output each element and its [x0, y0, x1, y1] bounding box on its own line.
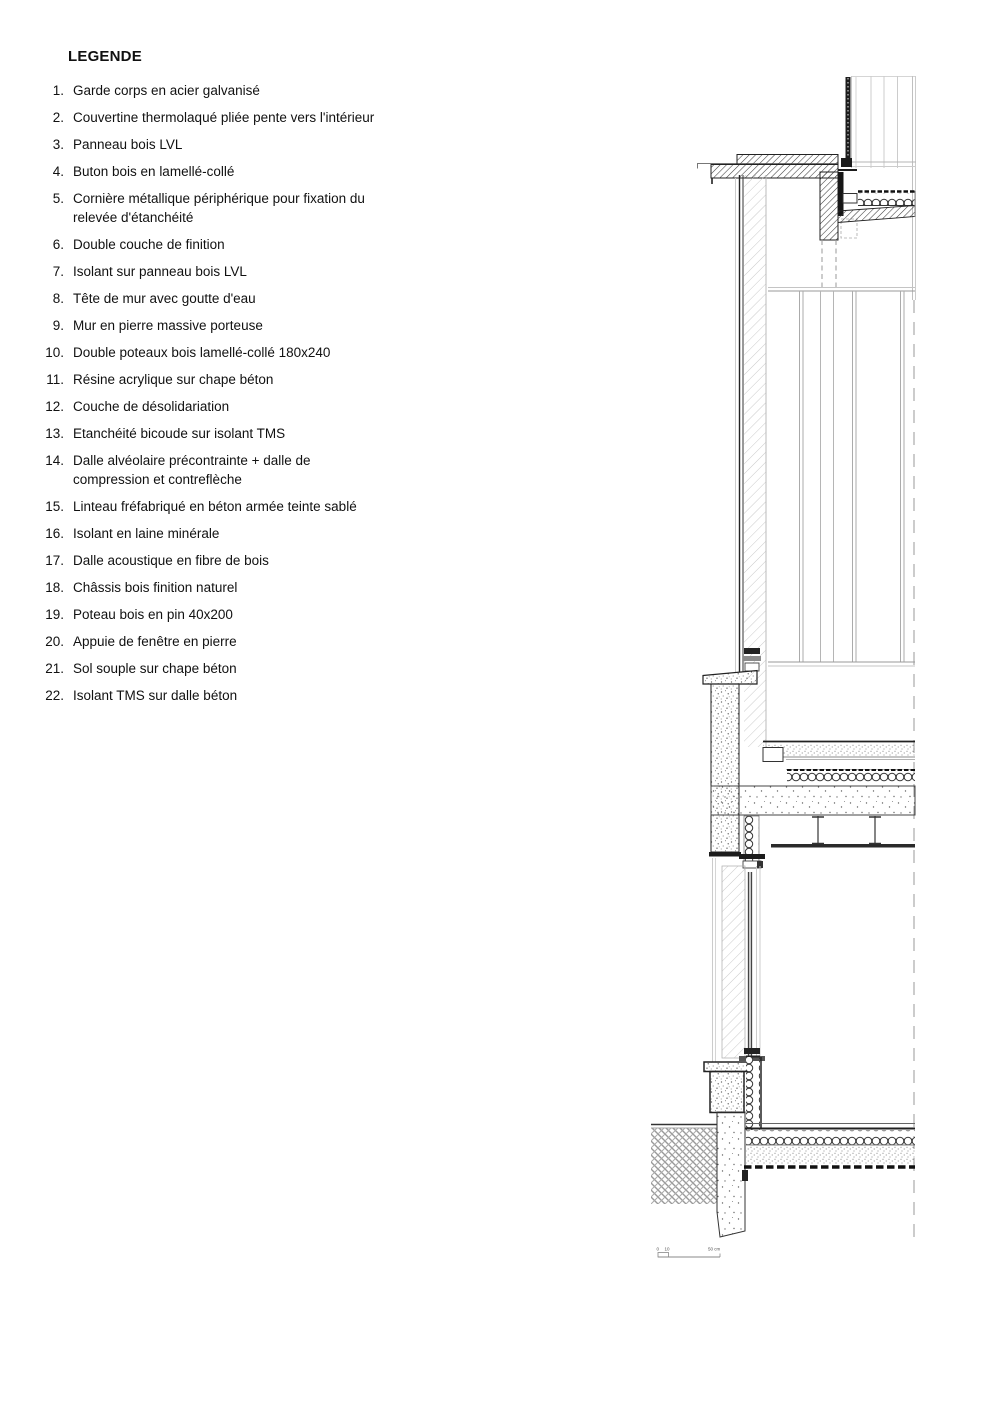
exterior-ground [651, 1125, 717, 1205]
coping [697, 155, 838, 185]
upper-glazing-elevation [851, 76, 916, 300]
architectural-detail-sheet: LEGENDE 1.Garde corps en acier galvanisé… [0, 0, 1000, 1414]
section-detail-drawing: 0 10 50 cm [0, 0, 1000, 1414]
intermediate-floor-slab [711, 742, 915, 863]
upper-wall [736, 175, 767, 747]
scale-ten-label: 10 [665, 1247, 671, 1252]
scale-zero-label: 0 [657, 1247, 660, 1252]
railing-post [838, 77, 857, 170]
lower-window-section [713, 854, 766, 1062]
foundation-wall [717, 1112, 745, 1237]
upper-window-elevation [768, 288, 915, 667]
scale-bar: 0 10 50 cm [657, 1247, 721, 1258]
ground-floor-slab [742, 1124, 915, 1182]
parapet-beam [820, 172, 857, 287]
scale-end-label: 50 cm [708, 1247, 721, 1252]
